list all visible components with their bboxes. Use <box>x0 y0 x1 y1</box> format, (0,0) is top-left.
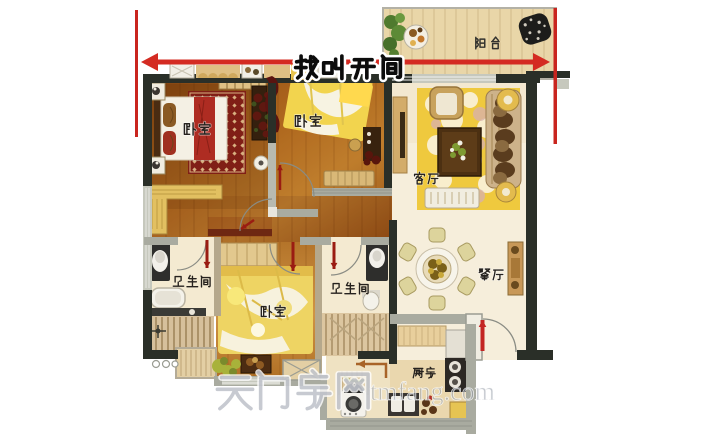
svg-text:tmfang.com: tmfang.com <box>370 377 495 406</box>
